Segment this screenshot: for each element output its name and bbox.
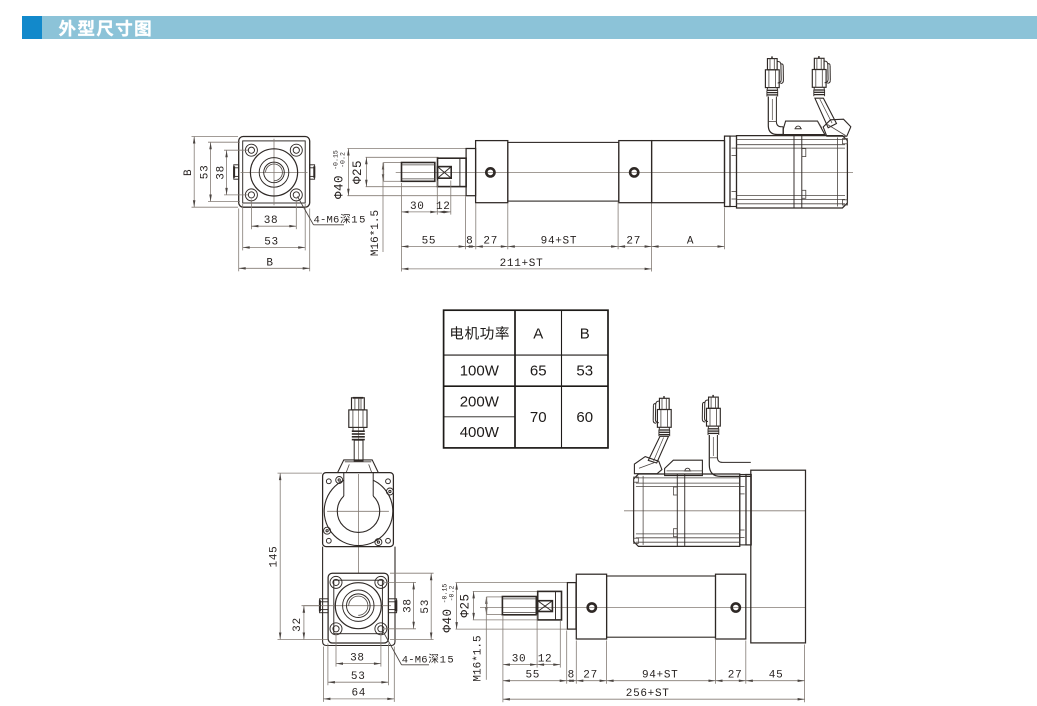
svg-text:30: 30 [512, 654, 527, 666]
svg-text:55: 55 [525, 670, 540, 682]
svg-text:8: 8 [466, 235, 473, 247]
svg-text:400W: 400W [460, 424, 500, 441]
svg-text:65: 65 [530, 363, 547, 380]
svg-text:12: 12 [436, 201, 451, 213]
svg-text:27: 27 [483, 235, 498, 247]
svg-text:-0.2: -0.2 [340, 152, 347, 168]
svg-text:M16*1.5: M16*1.5 [473, 635, 485, 681]
svg-text:100W: 100W [460, 363, 500, 380]
svg-text:256+ST: 256+ST [626, 688, 670, 700]
svg-text:Φ40: Φ40 [441, 608, 455, 632]
svg-text:B: B [266, 257, 273, 269]
svg-text:45: 45 [769, 670, 784, 682]
svg-text:4-M6: 4-M6 [314, 215, 340, 227]
svg-text:32: 32 [292, 617, 304, 632]
svg-text:M16*1.5: M16*1.5 [370, 210, 382, 256]
svg-text:Φ25: Φ25 [351, 160, 365, 184]
svg-text:15: 15 [440, 654, 456, 666]
svg-text:53: 53 [576, 363, 593, 380]
svg-text:55: 55 [422, 235, 437, 247]
svg-text:27: 27 [583, 670, 598, 682]
svg-text:Φ40: Φ40 [333, 175, 347, 199]
svg-text:30: 30 [410, 201, 425, 213]
svg-text:145: 145 [269, 546, 281, 568]
svg-text:4-M6: 4-M6 [402, 654, 428, 666]
svg-text:B: B [183, 169, 195, 176]
svg-text:94+ST: 94+ST [541, 235, 578, 247]
svg-text:60: 60 [576, 409, 593, 426]
svg-text:211+ST: 211+ST [500, 258, 544, 270]
svg-text:200W: 200W [460, 393, 500, 410]
svg-text:53: 53 [420, 599, 432, 614]
svg-text:94+ST: 94+ST [642, 670, 679, 682]
svg-text:27: 27 [728, 670, 743, 682]
svg-text:53: 53 [351, 671, 366, 683]
svg-text:15: 15 [351, 215, 367, 227]
svg-text:38: 38 [216, 165, 228, 180]
svg-text:38: 38 [264, 215, 279, 227]
svg-text:27: 27 [626, 235, 641, 247]
svg-text:-0.15: -0.15 [441, 584, 448, 604]
svg-text:-0.2: -0.2 [448, 586, 455, 602]
svg-text:Φ25: Φ25 [458, 593, 472, 617]
svg-text:A: A [687, 235, 694, 247]
svg-text:8: 8 [568, 670, 575, 682]
svg-text:38: 38 [402, 598, 414, 613]
svg-text:70: 70 [530, 409, 547, 426]
svg-text:A: A [533, 325, 543, 342]
svg-text:38: 38 [350, 653, 365, 665]
svg-text:53: 53 [264, 237, 279, 249]
svg-text:53: 53 [200, 165, 212, 180]
svg-text:-0.15: -0.15 [333, 150, 340, 170]
svg-text:B: B [580, 325, 590, 342]
svg-text:64: 64 [351, 688, 366, 700]
svg-text:12: 12 [538, 654, 553, 666]
